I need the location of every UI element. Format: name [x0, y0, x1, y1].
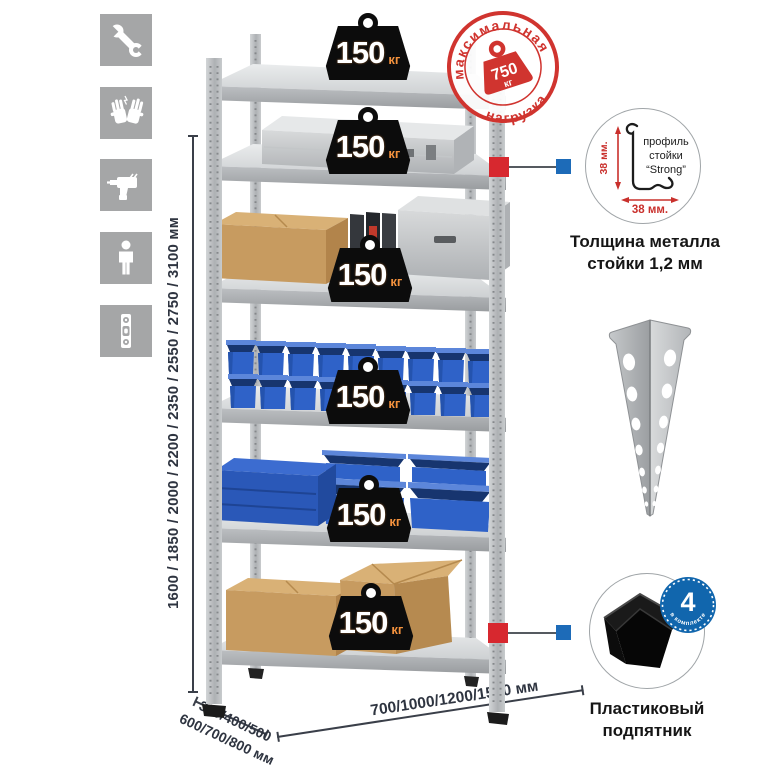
person-icon	[106, 238, 146, 278]
badge-handle	[361, 583, 381, 603]
shelf-load-badge: 150кг	[325, 107, 411, 174]
shelf-load-badge: 150кг	[327, 235, 413, 302]
icon-tile-gloves	[100, 87, 152, 139]
profile-cross-section-drawing: 38 мм. 38 мм. профиль стойки “Strong”	[586, 109, 699, 222]
shelf-load-badge: 150кг	[325, 13, 411, 80]
foot-callout-marker-blue	[556, 625, 571, 640]
shelf-load-badge: 150кг	[328, 583, 414, 650]
shelf-load-badge: 150кг	[325, 357, 411, 424]
svg-text:стойки: стойки	[649, 150, 683, 162]
icon-tile-drill	[100, 159, 152, 211]
level-icon	[106, 311, 146, 351]
svg-text:профиль: профиль	[643, 136, 689, 148]
foot-callout-marker-red	[488, 623, 508, 643]
height-dimension-tick-top	[188, 135, 198, 137]
gloves-icon	[106, 93, 146, 133]
svg-text:38 мм.: 38 мм.	[632, 204, 668, 216]
badge-handle	[360, 235, 380, 255]
wrench-icon	[106, 20, 146, 60]
profile-caption: Толщина металла стойки 1,2 мм	[570, 231, 720, 275]
profile-detail-circle: 38 мм. 38 мм. профиль стойки “Strong”	[585, 108, 701, 224]
profile-callout-marker-red	[489, 157, 509, 177]
svg-text:38 мм.: 38 мм.	[598, 141, 610, 174]
shelf-load-badge: 150кг	[326, 475, 412, 542]
drill-icon	[106, 165, 146, 205]
height-dimension-line	[192, 136, 194, 692]
foot-caption: Пластиковый подпятник	[573, 698, 721, 742]
icon-tile-level	[100, 305, 152, 357]
profile-callout-marker-blue	[556, 159, 571, 174]
profile-callout-line	[509, 166, 556, 168]
foot-callout-line	[508, 632, 556, 634]
icon-tile-person	[100, 232, 152, 284]
qty-badge: 4 в комплекте	[659, 576, 717, 634]
height-dimension-label: 1600 / 1850 / 2000 / 2200 / 2350 / 2550 …	[165, 133, 187, 693]
corner-post-image	[600, 312, 700, 524]
badge-handle	[358, 357, 378, 377]
svg-text:“Strong”: “Strong”	[646, 164, 686, 176]
badge-handle	[359, 475, 379, 495]
icon-tile-wrench	[100, 14, 152, 66]
badge-handle	[358, 107, 378, 127]
product-infographic: 1600 / 1850 / 2000 / 2200 / 2350 / 2550 …	[0, 0, 765, 765]
badge-handle	[358, 13, 378, 33]
svg-text:4: 4	[680, 587, 695, 617]
max-load-stamp: максимальная нагрузка 750 кг	[444, 6, 564, 128]
